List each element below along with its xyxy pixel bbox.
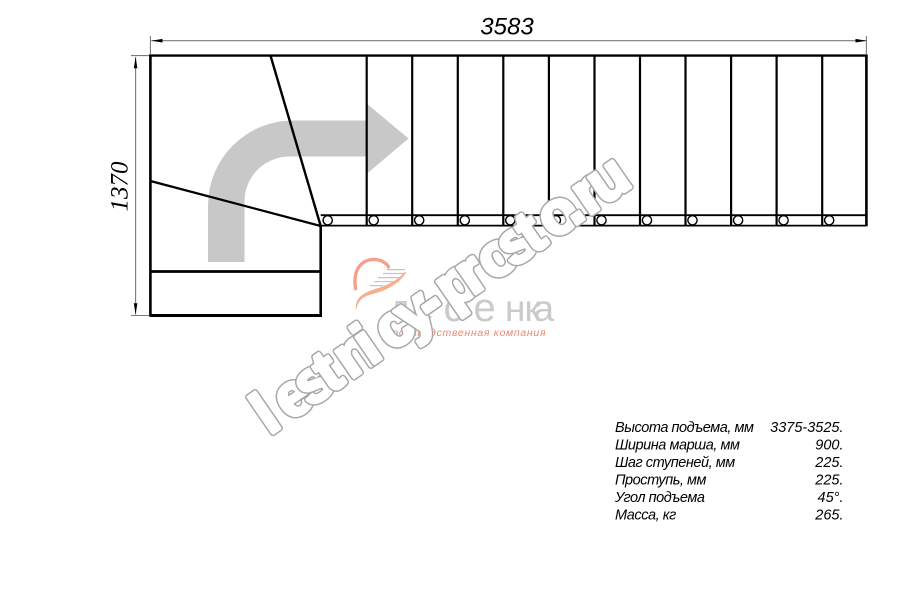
svg-text:225.: 225. (814, 473, 843, 489)
svg-text:1370: 1370 (107, 161, 134, 212)
svg-text:265.: 265. (814, 508, 843, 524)
svg-text:Ширина марша, мм: Ширина марша, мм (615, 438, 740, 454)
svg-text:Шаг ступеней, мм: Шаг ступеней, мм (615, 455, 735, 471)
svg-text:Угол подъема: Угол подъема (614, 490, 705, 506)
svg-text:45°.: 45°. (818, 490, 844, 506)
svg-text:Высота подъема, мм: Высота подъема, мм (615, 420, 754, 436)
svg-text:Проступь, мм: Проступь, мм (615, 473, 707, 489)
svg-text:225.: 225. (814, 455, 843, 471)
svg-text:900.: 900. (815, 438, 843, 454)
svg-text:3375-3525.: 3375-3525. (770, 420, 843, 436)
svg-text:Масса, кг: Масса, кг (615, 508, 676, 524)
svg-text:3583: 3583 (480, 14, 534, 41)
